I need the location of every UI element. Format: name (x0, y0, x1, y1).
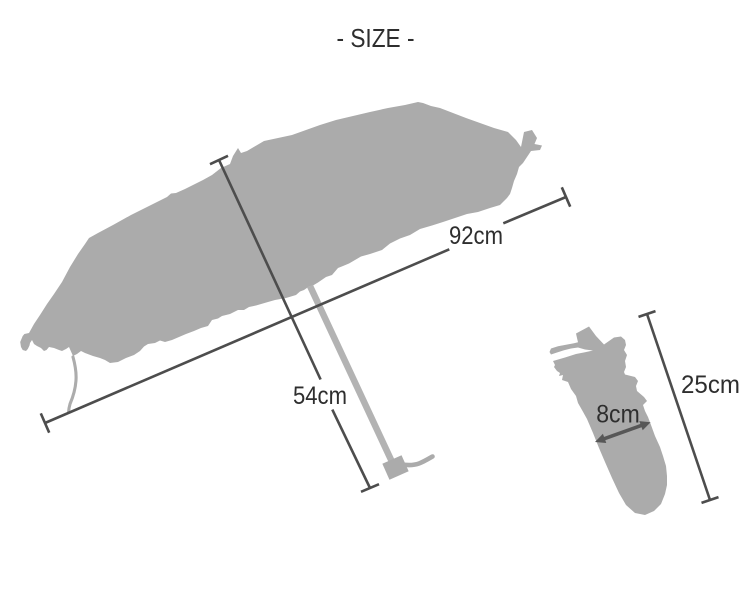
svg-text:- SIZE -: - SIZE - (337, 25, 415, 53)
svg-text:25cm: 25cm (681, 371, 740, 399)
svg-text:54cm: 54cm (293, 382, 347, 410)
svg-text:8cm: 8cm (596, 401, 640, 429)
svg-text:92cm: 92cm (449, 222, 503, 250)
